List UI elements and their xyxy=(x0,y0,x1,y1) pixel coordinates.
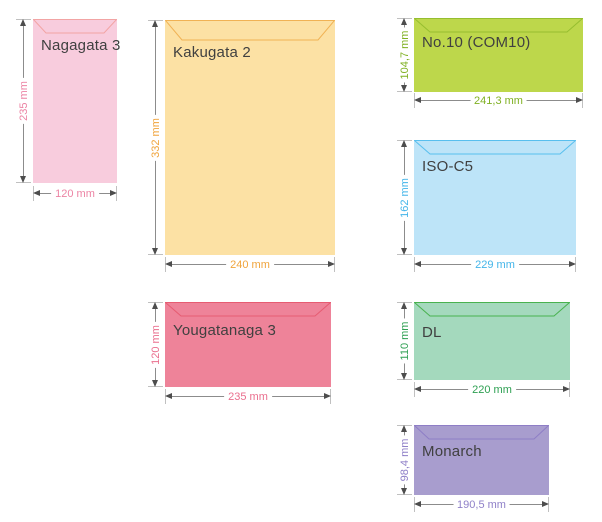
envelope-label: Nagagata 3 xyxy=(41,37,121,54)
arrow-down-icon xyxy=(401,373,407,380)
height-dimension: 110 mm xyxy=(397,302,412,380)
envelope-label: Yougatanaga 3 xyxy=(173,322,276,339)
arrow-up-icon xyxy=(401,425,407,432)
arrow-left-icon xyxy=(414,386,421,392)
arrow-down-icon xyxy=(401,248,407,255)
arrow-down-icon xyxy=(401,488,407,495)
width-dimension-label: 241,3 mm xyxy=(470,95,527,107)
arrow-left-icon xyxy=(165,393,172,399)
height-dimension-label: 120 mm xyxy=(149,322,163,368)
arrow-right-icon xyxy=(576,97,583,103)
height-dimension-label: 110 mm xyxy=(398,319,412,364)
envelope-flap-outline xyxy=(414,302,570,317)
arrow-right-icon xyxy=(324,393,331,399)
height-dimension: 120 mm xyxy=(148,302,163,387)
envelope-label: DL xyxy=(422,324,442,341)
width-dimension: 190,5 mm xyxy=(414,497,549,512)
arrow-left-icon xyxy=(414,501,421,507)
arrow-left-icon xyxy=(33,190,40,196)
height-dimension: 162 mm xyxy=(397,140,412,255)
envelope-flap-outline xyxy=(414,140,576,155)
height-dimension-label: 104,7 mm xyxy=(398,28,412,83)
envelope-yougatanaga-3: Yougatanaga 3 xyxy=(165,302,331,387)
arrow-left-icon xyxy=(414,97,421,103)
arrow-right-icon xyxy=(569,261,576,267)
height-dimension-label: 332 mm xyxy=(149,115,163,161)
envelope-flap-outline xyxy=(33,19,117,34)
width-dimension-label: 240 mm xyxy=(226,259,274,271)
envelope-size-diagram: Nagagata 3 235 mm 120 mm Kakugata 2 xyxy=(0,0,602,522)
height-dimension-label: 162 mm xyxy=(398,175,412,221)
arrow-up-icon xyxy=(401,18,407,25)
height-dimension: 104,7 mm xyxy=(397,18,412,92)
width-dimension-label: 120 mm xyxy=(51,188,99,200)
height-dimension: 235 mm xyxy=(16,19,31,183)
width-dimension: 241,3 mm xyxy=(414,93,583,108)
width-dimension: 240 mm xyxy=(165,257,335,272)
envelope-flap-outline xyxy=(414,18,583,33)
height-dimension: 98,4 mm xyxy=(397,425,412,495)
envelope-label: Kakugata 2 xyxy=(173,44,251,61)
height-dimension: 332 mm xyxy=(148,20,163,255)
envelope-nagagata-3: Nagagata 3 xyxy=(33,19,117,183)
arrow-down-icon xyxy=(152,248,158,255)
width-dimension-label: 235 mm xyxy=(224,391,272,403)
arrow-down-icon xyxy=(20,176,26,183)
width-dimension: 120 mm xyxy=(33,186,117,201)
arrow-up-icon xyxy=(401,140,407,147)
arrow-down-icon xyxy=(401,85,407,92)
envelope-no10-com10: No.10 (COM10) xyxy=(414,18,583,92)
envelope-monarch: Monarch xyxy=(414,425,549,495)
envelope-flap-outline xyxy=(165,302,331,317)
envelope-kakugata-2: Kakugata 2 xyxy=(165,20,335,255)
envelope-label: No.10 (COM10) xyxy=(422,34,530,51)
height-dimension-label: 235 mm xyxy=(17,78,31,124)
arrow-down-icon xyxy=(152,380,158,387)
envelope-dl: DL xyxy=(414,302,570,380)
envelope-label: ISO-C5 xyxy=(422,158,473,175)
envelope-label: Monarch xyxy=(422,443,482,460)
envelope-flap-outline xyxy=(165,20,335,41)
arrow-right-icon xyxy=(563,386,570,392)
arrow-up-icon xyxy=(20,19,26,26)
arrow-right-icon xyxy=(542,501,549,507)
arrow-up-icon xyxy=(401,302,407,309)
arrow-up-icon xyxy=(152,302,158,309)
arrow-left-icon xyxy=(414,261,421,267)
arrow-up-icon xyxy=(152,20,158,27)
arrow-left-icon xyxy=(165,261,172,267)
arrow-right-icon xyxy=(328,261,335,267)
width-dimension-label: 229 mm xyxy=(471,259,519,271)
arrow-right-icon xyxy=(110,190,117,196)
width-dimension-label: 220 mm xyxy=(468,384,516,396)
height-dimension-label: 98,4 mm xyxy=(398,436,412,485)
envelope-flap-outline xyxy=(414,425,549,440)
width-dimension: 229 mm xyxy=(414,257,576,272)
envelope-iso-c5: ISO-C5 xyxy=(414,140,576,255)
width-dimension: 220 mm xyxy=(414,382,570,397)
width-dimension: 235 mm xyxy=(165,389,331,404)
width-dimension-label: 190,5 mm xyxy=(453,499,510,511)
